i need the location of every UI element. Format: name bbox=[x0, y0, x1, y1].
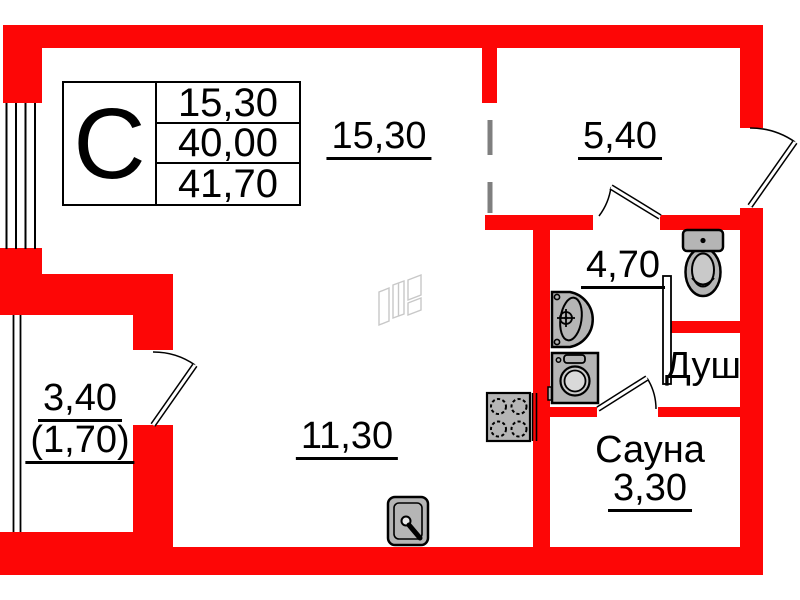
info-living-area: 15,30 bbox=[157, 83, 299, 124]
label-sauna-name: Сауна bbox=[595, 430, 705, 470]
wall-central-vertical bbox=[533, 215, 550, 547]
door-bathroom bbox=[599, 187, 660, 217]
info-total-area: 41,70 bbox=[157, 164, 299, 204]
label-bathroom: 4,70 bbox=[581, 245, 665, 289]
door-balcony-left bbox=[153, 352, 195, 425]
wall-sauna-top-right bbox=[658, 407, 740, 417]
wall-left-upper-block bbox=[3, 25, 42, 103]
balcony-glazing-upper bbox=[7, 103, 36, 249]
gas-stove-icon bbox=[487, 393, 537, 441]
door-balcony-right bbox=[750, 128, 795, 206]
door-sauna bbox=[598, 378, 656, 409]
watermark bbox=[379, 275, 421, 325]
wall-right-upper bbox=[740, 25, 763, 128]
washing-machine-icon bbox=[548, 353, 598, 403]
section-letter: С bbox=[64, 83, 157, 204]
label-kitchen: 5,40 bbox=[578, 116, 662, 160]
wall-left-mid-block bbox=[0, 248, 42, 315]
floor-plan: С 15,30 40,00 41,70 15,30 5,40 4,70 Душ … bbox=[0, 0, 800, 600]
label-balcony-area: 3,40 bbox=[38, 378, 122, 422]
toilet-icon bbox=[683, 230, 723, 296]
wall-top bbox=[3, 25, 763, 48]
wall-balcony-stub-upper bbox=[133, 274, 173, 350]
label-room-lower: 11,30 bbox=[296, 416, 398, 460]
label-room-upper: 15,30 bbox=[326, 116, 431, 160]
wall-sauna-top-left bbox=[550, 407, 597, 417]
info-table: С 15,30 40,00 41,70 bbox=[62, 81, 301, 206]
label-shower: Душ bbox=[665, 346, 741, 386]
kitchen-sink-icon bbox=[388, 497, 428, 545]
label-sauna-area: 3,30 bbox=[608, 468, 692, 512]
wash-basin-icon bbox=[552, 292, 593, 347]
info-floor-area: 40,00 bbox=[157, 124, 299, 164]
wall-mid-horizontal-right bbox=[660, 215, 740, 230]
wall-bottom-main bbox=[173, 547, 763, 575]
wall-shower-top bbox=[666, 321, 740, 333]
wall-right-main bbox=[740, 208, 763, 575]
wall-bottom-balcony bbox=[0, 532, 173, 575]
label-balcony-area-reduced: (1,70) bbox=[25, 420, 134, 464]
balcony-glazing-lower bbox=[14, 315, 21, 532]
wall-partition-stub bbox=[482, 48, 497, 103]
wall-balcony-arm bbox=[42, 274, 133, 315]
